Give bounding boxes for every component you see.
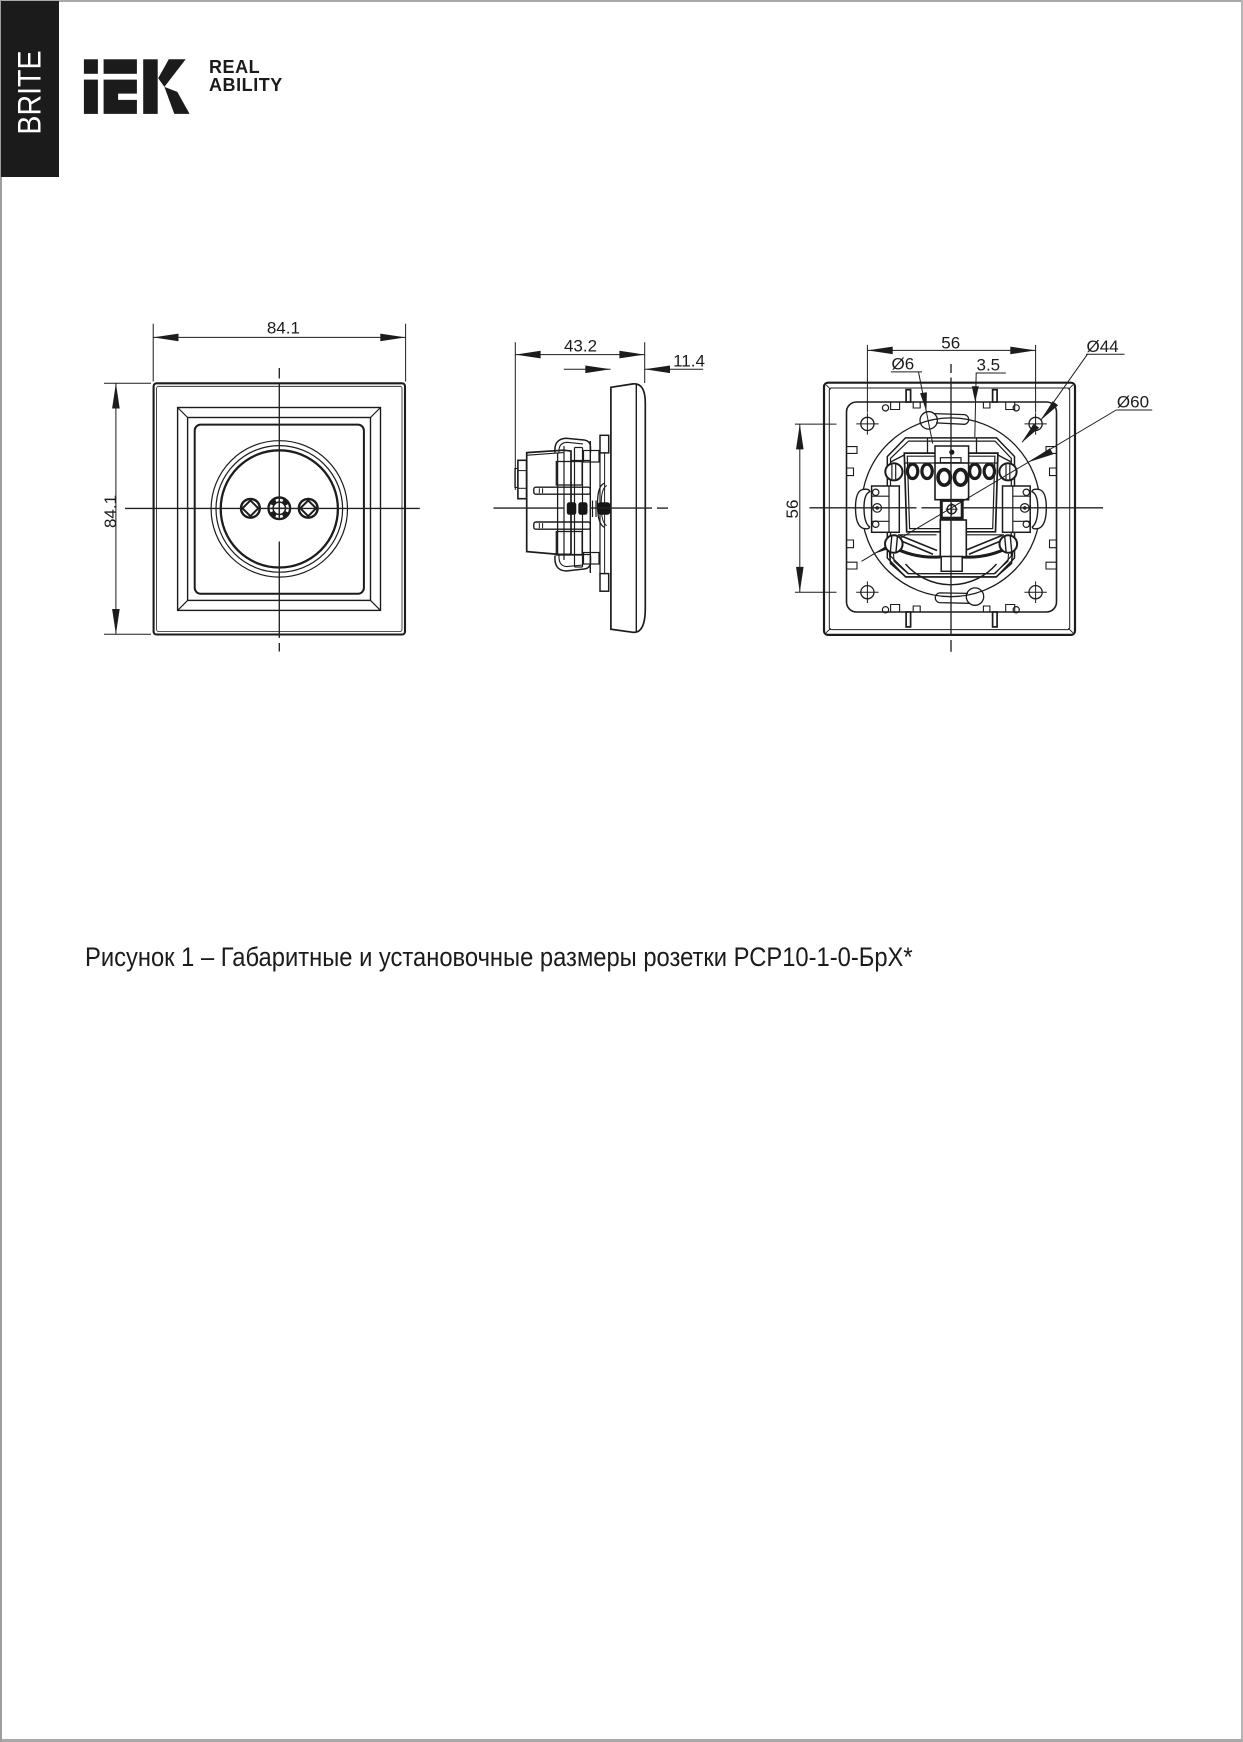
svg-text:3.5: 3.5 (977, 356, 1001, 375)
svg-text:Ø6: Ø6 (892, 355, 915, 374)
svg-text:56: 56 (783, 500, 802, 519)
svg-text:43.2: 43.2 (564, 337, 597, 356)
svg-text:56: 56 (941, 333, 960, 352)
svg-text:Ø60: Ø60 (1117, 393, 1149, 412)
svg-text:Ø44: Ø44 (1087, 337, 1119, 356)
svg-text:84.1: 84.1 (101, 495, 120, 528)
svg-text:84.1: 84.1 (267, 319, 300, 338)
svg-text:11.4: 11.4 (673, 351, 705, 370)
